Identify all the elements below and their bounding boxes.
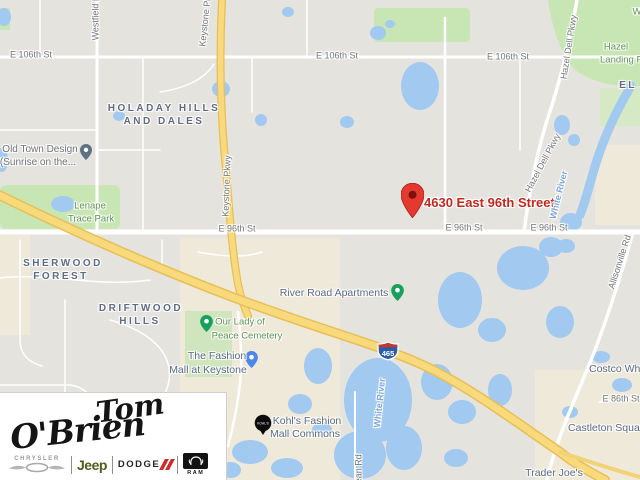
brand-divider — [112, 456, 113, 474]
dodge-wordmark: DODGE — [118, 459, 160, 470]
park-label-lenape-2: Trace Park — [68, 214, 114, 224]
poi-label-fashion-mall-2[interactable]: Mall at Keystone — [169, 365, 247, 376]
ram-wordmark: RAM — [187, 470, 204, 476]
neighborhood-sherwood-2: FOREST — [33, 272, 89, 282]
park-label-lenape-1: Lenape — [74, 201, 106, 211]
old-town-design-pin-icon[interactable] — [80, 144, 92, 160]
poi-label-kohls-2[interactable]: Mall Commons — [270, 429, 340, 440]
poi-label-old-town-1[interactable]: Old Town Design — [2, 145, 77, 155]
ram-head-icon — [183, 453, 208, 469]
neighborhood-driftwood-2: HILLS — [119, 317, 160, 327]
street-label-106th-mid: E 106th St — [316, 52, 358, 61]
svg-text:465: 465 — [382, 349, 395, 358]
poi-label-fashion-mall-1[interactable]: The Fashion — [188, 351, 246, 362]
poi-label-costco[interactable]: Costco Wholesale — [589, 364, 640, 375]
brand-logos-row: CHRYSLER Jeep DODGE — [8, 453, 221, 476]
svg-text:KOHL'S: KOHL'S — [257, 422, 268, 426]
street-label-westfield: Westfield Blvd — [92, 0, 101, 40]
neighborhood-driftwood-1: DRIFTWOOD — [99, 304, 183, 314]
brand-divider — [177, 456, 178, 474]
destination-address-label[interactable]: 4630 East 96th Street — [424, 195, 555, 210]
ram-logo: RAM — [183, 453, 208, 476]
apartments-pin-icon[interactable] — [391, 284, 404, 301]
neighborhood-el-partial: EL — [619, 81, 637, 91]
street-label-96th-mid: E 96th St — [445, 224, 482, 233]
dodge-logo: DODGE — [118, 459, 172, 470]
neighborhood-holaday-2: AND DALES — [124, 117, 205, 127]
map-canvas[interactable]: 465 KOHL'S 4630 East 96th Street E 106th… — [0, 0, 640, 480]
neighborhood-sherwood-1: SHERWOOD — [23, 259, 103, 269]
jeep-logo: Jeep — [77, 457, 107, 473]
park-label-hazel-landing-1: Hazel — [604, 42, 628, 52]
poi-label-cemetery-2[interactable]: Peace Cemetery — [212, 331, 283, 341]
interstate-465-shield-icon: 465 — [377, 341, 399, 361]
poi-label-kohls-1[interactable]: Kohl's Fashion — [273, 416, 342, 427]
poi-label-old-town-2[interactable]: (Sunrise on the... — [0, 158, 76, 168]
street-label-96th-west: E 96th St — [218, 225, 255, 234]
brand-divider — [71, 456, 72, 474]
dealer-logo-script: Tom O'Brien — [0, 393, 226, 451]
dealer-logo: Tom O'Brien CHRYSLER Jeep DODGE — [0, 392, 227, 480]
poi-label-castleton[interactable]: Castleton Square — [568, 423, 640, 434]
street-label-dean: Dean Rd — [355, 454, 364, 480]
park-label-hazel-landing-2: Landing Park — [600, 55, 640, 65]
chrysler-logo: CHRYSLER — [8, 456, 66, 473]
chrysler-wings-icon — [8, 462, 66, 473]
street-label-86th: E 86th St — [602, 395, 639, 404]
destination-marker-icon[interactable] — [401, 183, 424, 218]
logo-text-obrien: O'Brien — [8, 404, 146, 457]
poi-label-cemetery-1[interactable]: Our Lady of — [215, 317, 265, 327]
street-label-106th-east: E 106th St — [487, 53, 529, 62]
poi-label-trader-joes[interactable]: Trader Joe's — [525, 468, 583, 479]
street-label-106th-west: E 106th St — [10, 51, 52, 60]
neighborhood-holaday-1: HOLADAY HILLS — [108, 104, 221, 114]
park-label-w-partial: W — [633, 7, 640, 17]
street-label-96th-east: E 96th St — [530, 224, 567, 233]
poi-label-river-road-apartments[interactable]: River Road Apartments — [280, 288, 389, 299]
